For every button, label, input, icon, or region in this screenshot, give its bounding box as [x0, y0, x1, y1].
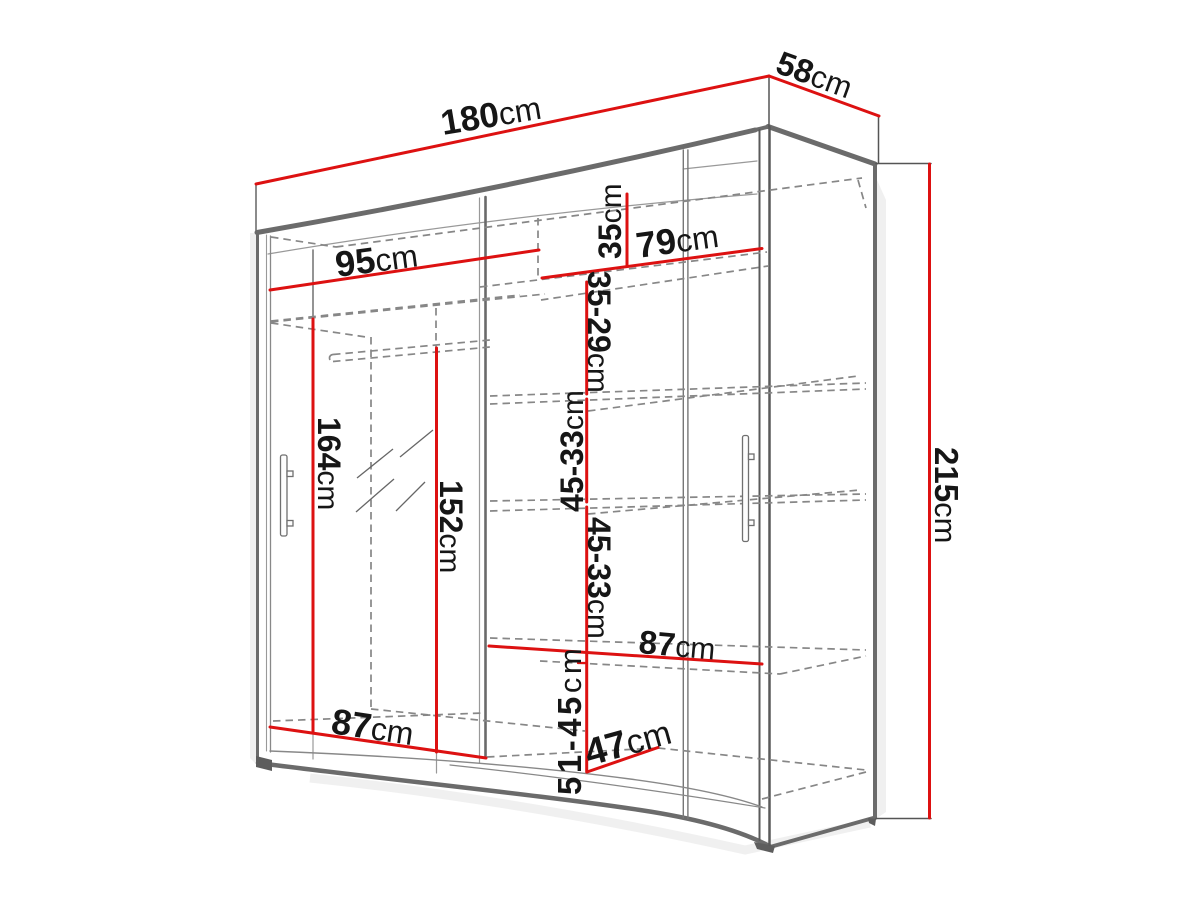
- svg-text:152cm: 152cm: [433, 480, 469, 573]
- svg-text:35-29cm: 35-29cm: [581, 271, 617, 393]
- svg-text:45-33cm: 45-33cm: [581, 517, 617, 639]
- svg-text:164cm: 164cm: [311, 417, 347, 510]
- svg-text:215cm: 215cm: [928, 447, 965, 543]
- svg-text:45-33cm: 45-33cm: [554, 390, 590, 512]
- svg-text:35cm: 35cm: [592, 183, 628, 259]
- svg-text:51-45cm: 51-45cm: [551, 645, 588, 795]
